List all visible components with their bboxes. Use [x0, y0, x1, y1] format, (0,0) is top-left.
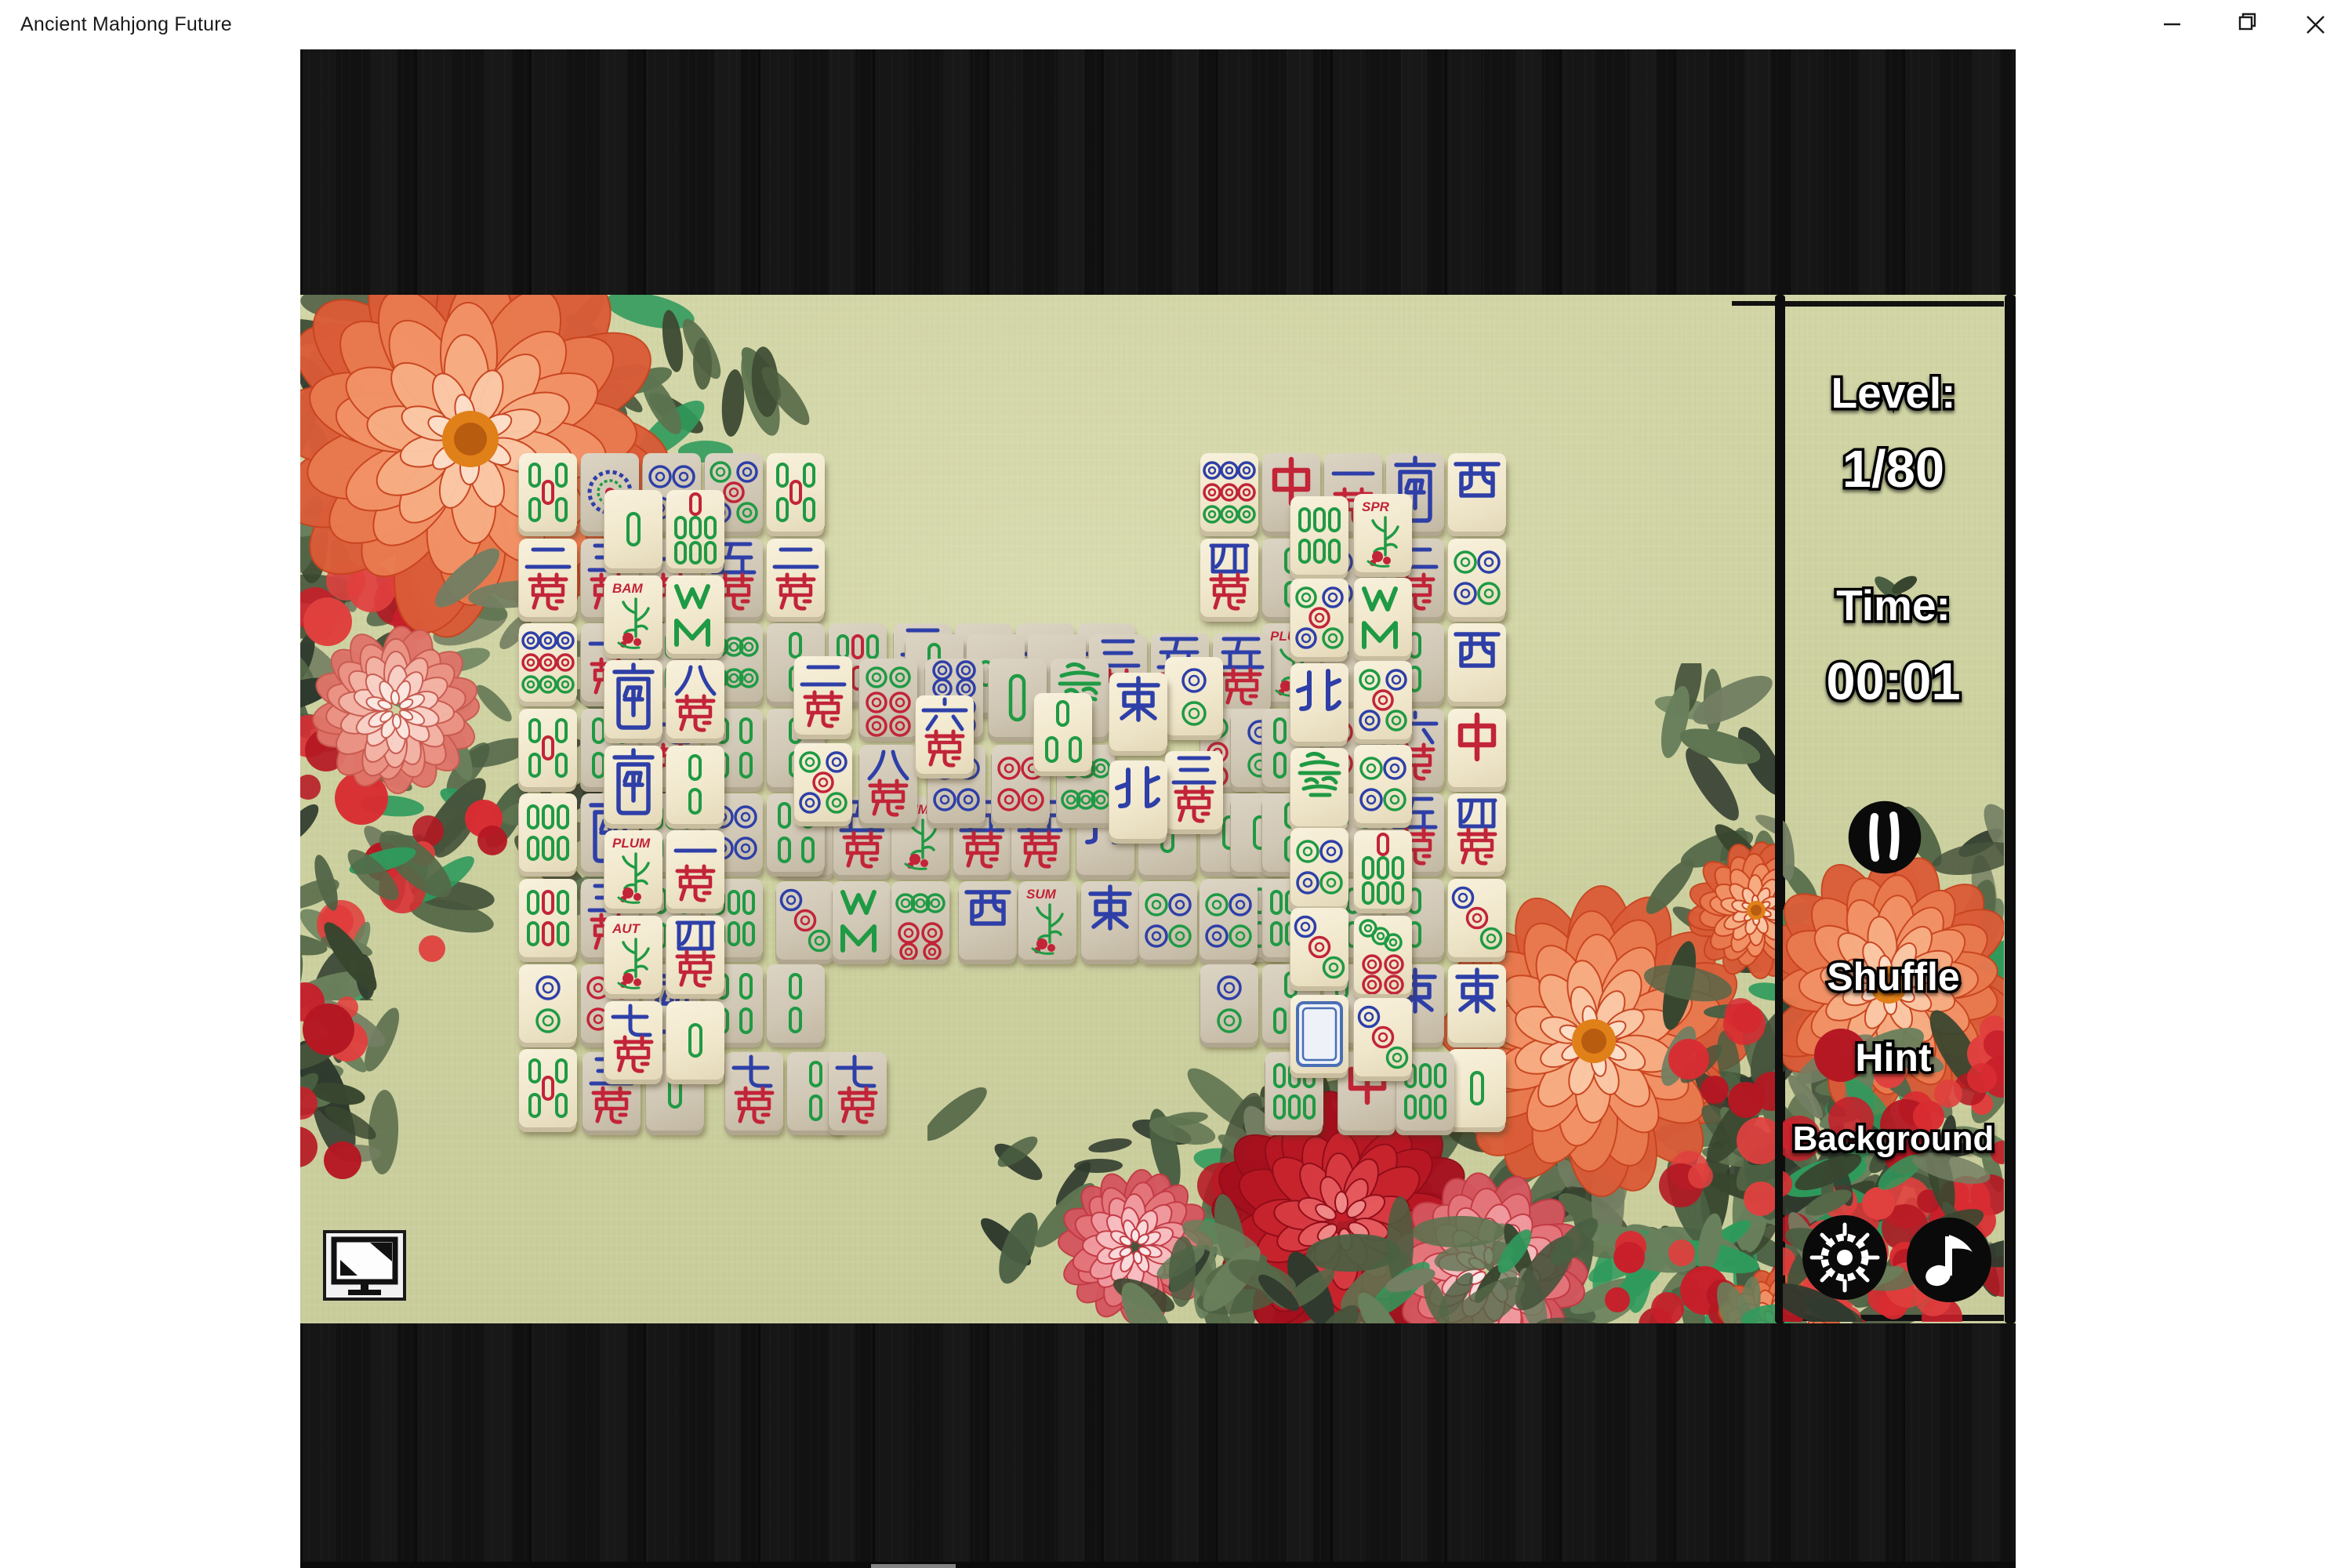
- svg-text:Background: Background: [1793, 1120, 1994, 1158]
- svg-text:1/80: 1/80: [1842, 440, 1944, 499]
- svg-text:PLUM: PLUM: [612, 836, 651, 851]
- svg-text:BAM: BAM: [612, 581, 644, 596]
- svg-text:Hint: Hint: [1855, 1036, 1932, 1080]
- svg-text:AUT: AUT: [612, 921, 641, 936]
- svg-text:Level:: Level:: [1831, 368, 1956, 417]
- svg-text:00:01: 00:01: [1826, 652, 1960, 711]
- svg-text:SUM: SUM: [1026, 887, 1057, 902]
- svg-text:Time:: Time:: [1836, 581, 1951, 630]
- svg-text:SPR: SPR: [1362, 499, 1390, 514]
- svg-text:Shuffle: Shuffle: [1827, 955, 1959, 999]
